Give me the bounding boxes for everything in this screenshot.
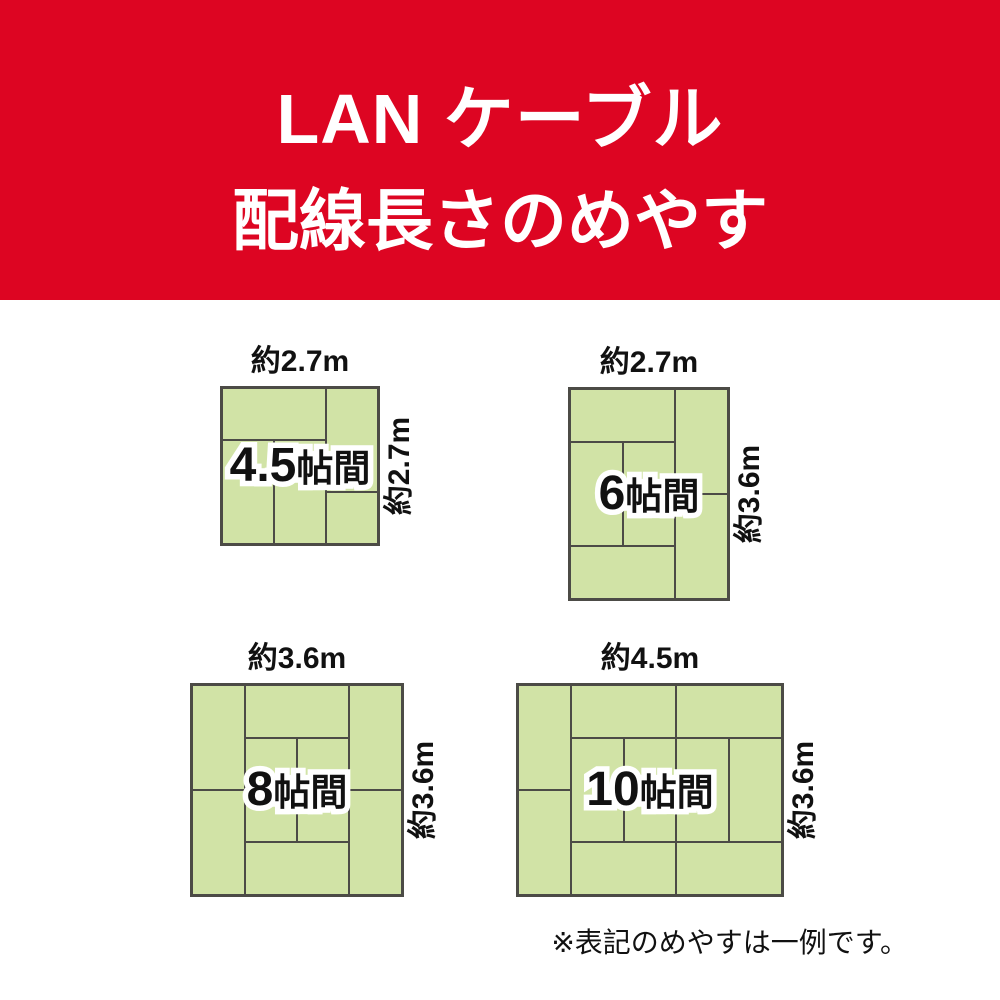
- room-size-label: 6帖間: [599, 470, 700, 518]
- room-size-suffix: 帖間: [640, 772, 714, 813]
- room-4-5jo: 4.5帖間4.5帖間: [220, 386, 380, 546]
- room-size-suffix: 帖間: [625, 476, 699, 517]
- room-size-label-wrap: 6帖間6帖間: [541, 360, 757, 628]
- room-size-label-wrap: 10帖間10帖間: [489, 656, 811, 924]
- room-size-number: 6: [599, 467, 626, 520]
- room-size-label-wrap: 4.5帖間4.5帖間: [193, 359, 407, 573]
- title-line-1: LAN ケーブル: [0, 84, 1000, 154]
- footnote: ※表記のめやすは一例です。: [551, 928, 908, 958]
- room-8jo: 8帖間8帖間: [190, 683, 404, 897]
- room-size-label: 10帖間: [586, 766, 713, 814]
- header-banner: LAN ケーブル 配線長さのめやす: [0, 0, 1000, 300]
- room-size-number: 8: [247, 763, 274, 816]
- room-6jo: 6帖間6帖間: [568, 387, 730, 601]
- room-size-suffix: 帖間: [296, 448, 370, 489]
- room-10jo: 10帖間10帖間: [516, 683, 784, 897]
- room-size-label-wrap: 8帖間8帖間: [163, 656, 431, 924]
- room-size-number: 10: [586, 763, 639, 816]
- title-line-2: 配線長さのめやす: [0, 188, 1000, 255]
- infographic: LAN ケーブル 配線長さのめやす 4.5帖間4.5帖間約2.7m約2.7m6帖…: [0, 0, 1000, 1000]
- room-size-suffix: 帖間: [273, 772, 347, 813]
- room-size-label: 4.5帖間: [230, 442, 371, 490]
- room-size-label: 8帖間: [247, 766, 348, 814]
- room-size-number: 4.5: [230, 439, 297, 492]
